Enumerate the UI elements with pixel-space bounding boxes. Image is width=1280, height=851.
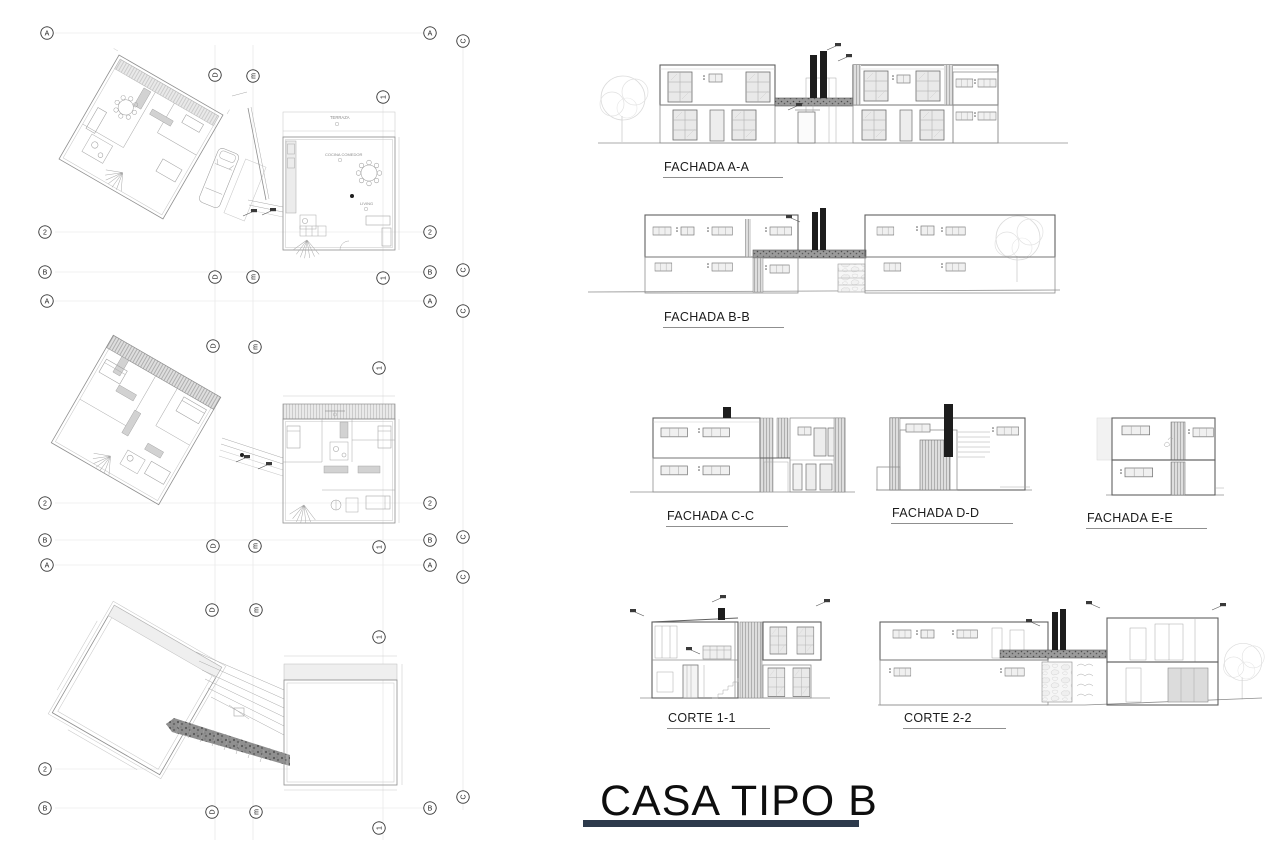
fachada-cc-drawing — [630, 407, 855, 492]
svg-text:m: m — [253, 543, 260, 549]
label-fachada-aa: FACHADA A-A — [663, 160, 783, 178]
plan-level1-left — [52, 44, 229, 220]
svg-text:2: 2 — [43, 767, 47, 774]
grid-marker-C: C — [456, 790, 470, 804]
grid-marker-m: m — [246, 69, 260, 83]
grid-marker-1: 1 — [372, 821, 386, 835]
fachada-dd-drawing — [876, 404, 1032, 490]
plan-label-living: LIVING — [360, 201, 373, 206]
grid-marker-D: D — [208, 68, 222, 82]
grid-marker-A: A — [423, 558, 437, 572]
grid-marker-2: 2 — [38, 762, 52, 776]
grid-marker-D: D — [206, 539, 220, 553]
svg-text:B: B — [428, 806, 433, 813]
grid-marker-A: A — [423, 294, 437, 308]
plan-level1-right: TERRAZA COCINA COMEDOR LIVING — [283, 112, 399, 262]
svg-text:D: D — [211, 343, 218, 348]
fachada-bb-drawing — [588, 208, 1060, 293]
svg-text:2: 2 — [43, 501, 47, 508]
svg-text:1: 1 — [381, 95, 388, 99]
grid-marker-B: B — [38, 265, 52, 279]
grid-marker-B: B — [38, 533, 52, 547]
grid-marker-A: A — [40, 558, 54, 572]
grid-marker-D: D — [206, 339, 220, 353]
svg-text:1: 1 — [377, 366, 384, 370]
architectural-sheet: TERRAZA COCINA COMEDOR LIVING — [0, 0, 1280, 851]
grid-marker-1: 1 — [372, 630, 386, 644]
label-fachada-bb: FACHADA B-B — [663, 310, 784, 328]
svg-text:D: D — [213, 72, 220, 77]
svg-text:D: D — [213, 274, 220, 279]
grid-marker-B: B — [423, 533, 437, 547]
svg-text:A: A — [428, 563, 433, 570]
svg-text:B: B — [43, 270, 48, 277]
fachada-aa-drawing — [598, 43, 1068, 143]
corte-22-drawing — [878, 601, 1264, 705]
label-fachada-cc: FACHADA C-C — [666, 509, 788, 527]
svg-text:A: A — [428, 299, 433, 306]
grid-marker-C: C — [456, 530, 470, 544]
svg-text:C: C — [461, 267, 468, 272]
grid-marker-D: D — [205, 603, 219, 617]
plan-roof-link — [166, 652, 290, 766]
svg-text:1: 1 — [377, 545, 384, 549]
svg-text:2: 2 — [428, 230, 432, 237]
grid-marker-1: 1 — [376, 90, 390, 104]
grid-marker-C: C — [456, 304, 470, 318]
grid-marker-m: m — [248, 340, 262, 354]
grid-marker-B: B — [423, 801, 437, 815]
svg-text:C: C — [461, 534, 468, 539]
svg-text:B: B — [43, 538, 48, 545]
grid-marker-m: m — [249, 603, 263, 617]
grid-marker-B: B — [38, 801, 52, 815]
label-fachada-dd: FACHADA D-D — [891, 506, 1013, 524]
label-corte-11: CORTE 1-1 — [667, 711, 770, 729]
grid-marker-2: 2 — [423, 225, 437, 239]
svg-text:m: m — [251, 274, 258, 280]
sheet-title: CASA TIPO B — [600, 777, 878, 826]
svg-text:C: C — [461, 574, 468, 579]
plan-level2-right — [283, 396, 399, 526]
svg-text:2: 2 — [428, 501, 432, 508]
corte-11-drawing — [630, 595, 830, 698]
plan-level2-left — [51, 335, 220, 504]
plan-label-cocina: COCINA COMEDOR — [325, 152, 362, 157]
grid-marker-2: 2 — [38, 225, 52, 239]
svg-text:1: 1 — [381, 276, 388, 280]
plan-label-terraza: TERRAZA — [330, 115, 350, 120]
svg-text:A: A — [428, 31, 433, 38]
grid-marker-2: 2 — [38, 496, 52, 510]
svg-text:m: m — [254, 809, 261, 815]
label-fachada-ee: FACHADA E-E — [1086, 511, 1207, 529]
grid-marker-C: C — [456, 570, 470, 584]
svg-text:A: A — [45, 563, 50, 570]
svg-text:1: 1 — [377, 635, 384, 639]
sheet-linework: TERRAZA COCINA COMEDOR LIVING — [0, 0, 1280, 851]
svg-text:m: m — [251, 73, 258, 79]
grid-marker-C: C — [456, 263, 470, 277]
plan-roof-left — [43, 599, 226, 782]
svg-text:B: B — [43, 806, 48, 813]
grid-marker-m: m — [249, 805, 263, 819]
grid-marker-C: C — [456, 34, 470, 48]
title-underline-bar — [583, 820, 859, 827]
svg-text:m: m — [253, 344, 260, 350]
grid-marker-2: 2 — [423, 496, 437, 510]
svg-text:C: C — [461, 794, 468, 799]
svg-text:D: D — [210, 607, 217, 612]
svg-text:2: 2 — [43, 230, 47, 237]
svg-text:D: D — [211, 543, 218, 548]
svg-text:m: m — [254, 607, 261, 613]
grid-marker-A: A — [40, 294, 54, 308]
svg-text:C: C — [461, 38, 468, 43]
svg-text:B: B — [428, 270, 433, 277]
grid-marker-1: 1 — [372, 540, 386, 554]
grid-marker-D: D — [205, 805, 219, 819]
grid-marker-B: B — [423, 265, 437, 279]
grid-marker-1: 1 — [376, 271, 390, 285]
grid-marker-A: A — [40, 26, 54, 40]
svg-text:B: B — [428, 538, 433, 545]
grid-marker-m: m — [248, 539, 262, 553]
grid-markers-layer: AACDm122BBCDm1AACDm122BBCDm1AACDm12BBCDm… — [38, 26, 470, 835]
grid-marker-A: A — [423, 26, 437, 40]
svg-text:D: D — [210, 809, 217, 814]
svg-text:1: 1 — [377, 826, 384, 830]
plan-roof-right — [284, 656, 402, 790]
grid-marker-1: 1 — [372, 361, 386, 375]
svg-text:A: A — [45, 31, 50, 38]
svg-text:C: C — [461, 308, 468, 313]
plan-level2-bridge — [219, 438, 283, 476]
svg-text:A: A — [45, 299, 50, 306]
fachada-ee-drawing — [1097, 418, 1224, 495]
label-corte-22: CORTE 2-2 — [903, 711, 1006, 729]
